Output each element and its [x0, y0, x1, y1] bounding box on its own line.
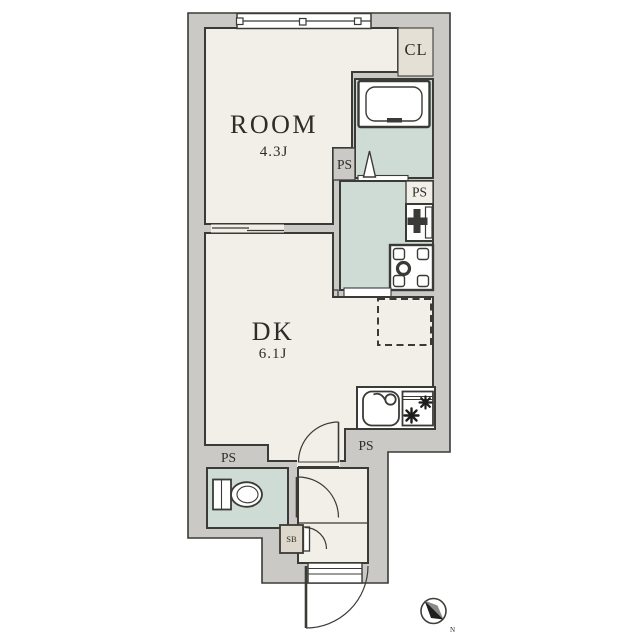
- closet-label: CL: [404, 40, 427, 59]
- room-size-label: 4.3J: [260, 144, 289, 160]
- compass-icon: [421, 599, 446, 624]
- pan-drain-ring: [398, 263, 410, 275]
- ps-label-kitchen: PS: [358, 438, 373, 453]
- stove-burner: [405, 409, 419, 423]
- pan-pad: [418, 276, 429, 287]
- floor-plan: ROOM 4.3J DK 6.1J CL PS PS PS PS SB N: [0, 0, 640, 640]
- pan-pad: [394, 249, 405, 260]
- shoe-box-label: SB: [286, 534, 297, 544]
- room-label: ROOM: [230, 110, 318, 139]
- floor-plan-drawing: ROOM 4.3J DK 6.1J CL PS PS PS PS SB N: [0, 0, 640, 640]
- ps-label-toilet: PS: [221, 450, 236, 465]
- entrance-opening: [308, 563, 362, 583]
- dk-label: DK: [252, 317, 295, 346]
- dk-size-label: 6.1J: [259, 346, 288, 362]
- ps-label-bath: PS: [337, 157, 352, 172]
- washbasin-faucet-h: [408, 218, 428, 226]
- stove-burner: [420, 397, 432, 409]
- pan-pad: [418, 249, 429, 260]
- sink-faucet: [385, 394, 395, 404]
- window-stop: [237, 18, 244, 25]
- window-stop: [355, 18, 362, 25]
- compass-north-label: N: [450, 626, 455, 634]
- ps-label-washroom: PS: [412, 185, 427, 200]
- bathtub-drain: [387, 118, 402, 123]
- pan-pad: [394, 276, 405, 287]
- shoe-box-door-panel: [304, 527, 310, 551]
- window-stop: [300, 19, 307, 26]
